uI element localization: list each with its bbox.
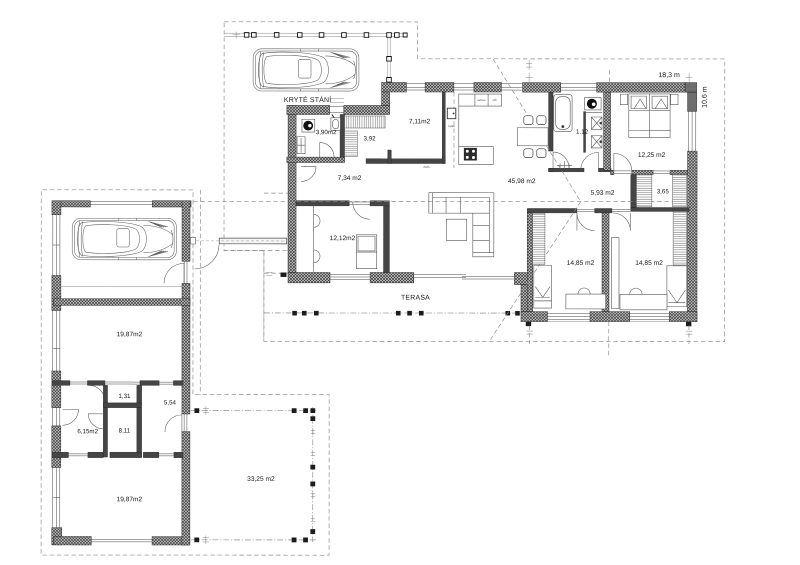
svg-text:12,25 m2: 12,25 m2 xyxy=(638,152,666,159)
svg-text:14,85 m2: 14,85 m2 xyxy=(567,260,595,267)
svg-text:3,90m2: 3,90m2 xyxy=(316,129,337,136)
svg-text:14,85 m2: 14,85 m2 xyxy=(635,260,663,267)
svg-text:1,31: 1,31 xyxy=(118,393,131,400)
svg-text:hydra: hydra xyxy=(448,125,455,128)
svg-text:19,87m2: 19,87m2 xyxy=(117,496,143,503)
svg-text:KRYTÉ STÁNÍ: KRYTÉ STÁNÍ xyxy=(284,95,331,104)
svg-text:12,12m2: 12,12m2 xyxy=(330,235,356,242)
svg-text:5,54: 5,54 xyxy=(164,399,177,406)
svg-text:6,15m2: 6,15m2 xyxy=(77,428,98,435)
svg-text:TERASA: TERASA xyxy=(401,295,430,302)
svg-text:7,11m2: 7,11m2 xyxy=(409,118,431,125)
svg-text:3,92: 3,92 xyxy=(364,135,377,142)
svg-text:1.12: 1.12 xyxy=(576,129,589,136)
svg-text:dveře: dveře xyxy=(423,166,430,169)
svg-text:45,98 m2: 45,98 m2 xyxy=(508,178,536,185)
svg-text:33,25 m2: 33,25 m2 xyxy=(247,476,275,483)
svg-text:5,93 m2: 5,93 m2 xyxy=(591,190,615,197)
svg-text:10,6 m: 10,6 m xyxy=(702,86,709,108)
svg-text:8,11: 8,11 xyxy=(119,427,131,434)
svg-text:18,3 m: 18,3 m xyxy=(658,72,680,79)
svg-text:MČ: MČ xyxy=(493,98,497,102)
svg-text:7,34 m2: 7,34 m2 xyxy=(338,175,362,182)
svg-text:3,65: 3,65 xyxy=(657,188,670,195)
svg-text:19,87m2: 19,87m2 xyxy=(117,331,143,338)
svg-text:lednice: lednice xyxy=(477,99,486,102)
